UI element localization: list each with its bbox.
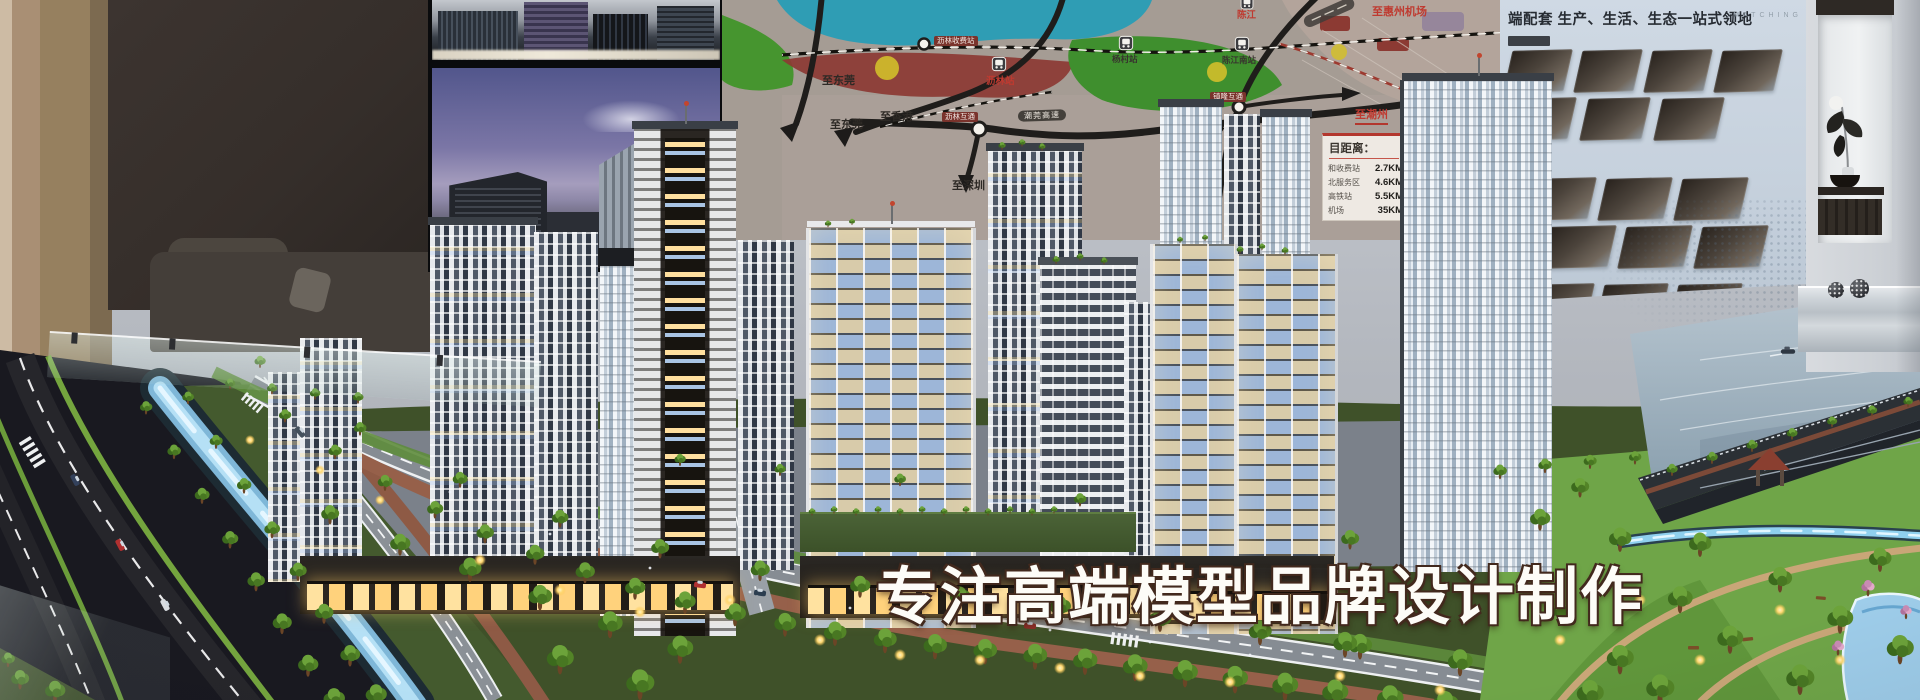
lit-storefronts [307, 581, 734, 610]
display-niche [1818, 15, 1892, 243]
railing-clamp [169, 338, 176, 349]
wall-corner-shadow [1896, 0, 1920, 372]
niche-drawer-box [1818, 199, 1882, 235]
showroom-photo: 至东莞 至东莞 至香港 至深圳 至惠州机场 至潮州 陈江 沥林站 杨村站 陈江南… [0, 0, 1920, 700]
podium-retail [300, 556, 740, 614]
decor-sphere [1828, 282, 1844, 298]
decor-sphere [1850, 279, 1869, 298]
model-tower-tall [1400, 80, 1552, 572]
wall-cabinet [1816, 0, 1894, 15]
railing-clamp [436, 355, 443, 366]
flower-in-vase [1818, 15, 1892, 195]
overlay-slogan: 专注高端模型品牌设计制作 [876, 546, 1644, 636]
model-tower [738, 240, 794, 570]
railing-clamp [71, 332, 78, 343]
niche-shelf [1818, 187, 1884, 195]
model-tower [430, 224, 536, 609]
model-tower [534, 232, 598, 607]
railing-clamp [304, 347, 311, 358]
